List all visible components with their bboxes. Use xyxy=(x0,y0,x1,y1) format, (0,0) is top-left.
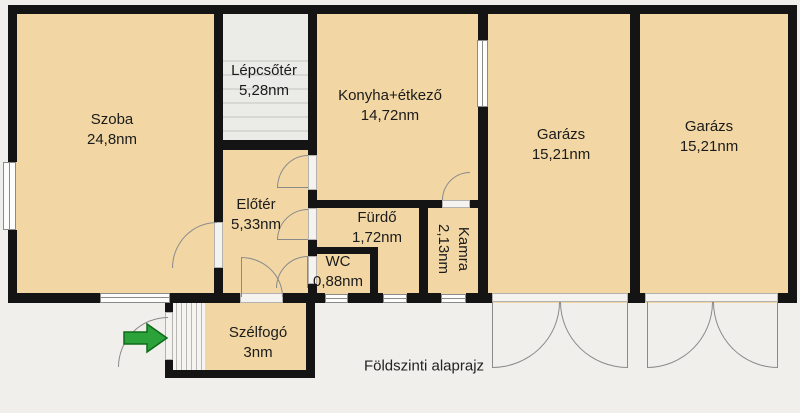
plan-caption: Földszinti alaprajz xyxy=(364,358,484,375)
wall xyxy=(308,200,442,208)
window xyxy=(477,40,488,107)
room-name: Fürdő xyxy=(357,209,396,226)
room-area: 15,21nm xyxy=(680,138,738,155)
window xyxy=(441,294,466,303)
room-label-wc: WC 0,88nm xyxy=(313,252,363,292)
door-opening xyxy=(308,208,317,240)
wall xyxy=(214,268,223,293)
wall xyxy=(8,5,797,14)
wall xyxy=(407,293,441,303)
wall xyxy=(788,5,797,303)
wall xyxy=(214,13,223,222)
room-label-szoba: Szoba 24,8nm xyxy=(87,110,137,150)
entrance-arrow-icon xyxy=(123,322,169,354)
wall xyxy=(348,293,383,303)
room-name: Konyha+étkező xyxy=(338,87,442,104)
wall xyxy=(214,140,317,150)
garage-door-opening xyxy=(492,293,628,302)
wall xyxy=(8,5,17,162)
entry-steps xyxy=(172,303,205,371)
room-label-furdo: Fürdő 1,72nm xyxy=(352,208,402,248)
wall xyxy=(8,293,100,303)
wall xyxy=(470,200,488,208)
room-name: Garázs xyxy=(685,118,733,135)
room-area: 15,21nm xyxy=(532,146,590,163)
room-name: WC xyxy=(325,253,350,270)
room-label-eloter: Előtér 5,33nm xyxy=(231,195,281,235)
room-name: Kamra xyxy=(455,227,472,271)
wall xyxy=(306,302,315,378)
room-name: Garázs xyxy=(537,126,585,143)
room-name: Előtér xyxy=(236,196,275,213)
room-area: 2,13nm xyxy=(435,224,452,274)
building-fill xyxy=(8,5,797,303)
window xyxy=(3,162,16,230)
wall xyxy=(478,13,488,40)
room-area: 14,72nm xyxy=(361,107,419,124)
garage-door-leaf xyxy=(647,302,713,368)
room-label-szelfogo: Szélfogó 3nm xyxy=(229,323,287,363)
wall xyxy=(283,293,325,303)
garage-door-opening xyxy=(645,293,778,302)
wall xyxy=(308,13,317,155)
room-name: Szoba xyxy=(91,111,134,128)
room-area: 5,28nm xyxy=(239,82,289,99)
wall xyxy=(630,13,640,293)
wall xyxy=(778,293,797,303)
wall xyxy=(466,293,492,303)
floor-plan: Szoba 24,8nm Lépcsőtér 5,28nm Konyha+étk… xyxy=(0,0,800,413)
room-area: 5,33nm xyxy=(231,216,281,233)
room-name: Szélfogó xyxy=(229,324,287,341)
garage-door-leaf xyxy=(713,302,778,368)
window xyxy=(325,294,348,303)
wall xyxy=(419,207,428,293)
garage-door-leaf xyxy=(560,302,628,368)
room-label-kamra: Kamra 2,13nm xyxy=(433,224,473,274)
room-label-lepcsoter: Lépcsőtér 5,28nm xyxy=(231,61,297,101)
wall xyxy=(170,293,240,303)
room-area: 1,72nm xyxy=(352,229,402,246)
room-area: 24,8nm xyxy=(87,131,137,148)
door-opening xyxy=(308,155,317,190)
door-opening xyxy=(442,200,470,208)
room-label-konyha: Konyha+étkező 14,72nm xyxy=(338,86,442,126)
room-name: Lépcsőtér xyxy=(231,62,297,79)
garage-door-leaf xyxy=(492,302,560,368)
room-label-garazs-2: Garázs 15,21nm xyxy=(680,117,738,157)
room-label-garazs-1: Garázs 15,21nm xyxy=(532,125,590,165)
room-area: 0,88nm xyxy=(313,273,363,290)
window xyxy=(383,294,407,303)
window xyxy=(100,293,170,303)
room-area: 3nm xyxy=(243,344,272,361)
wall xyxy=(165,370,313,378)
wall xyxy=(628,293,645,303)
